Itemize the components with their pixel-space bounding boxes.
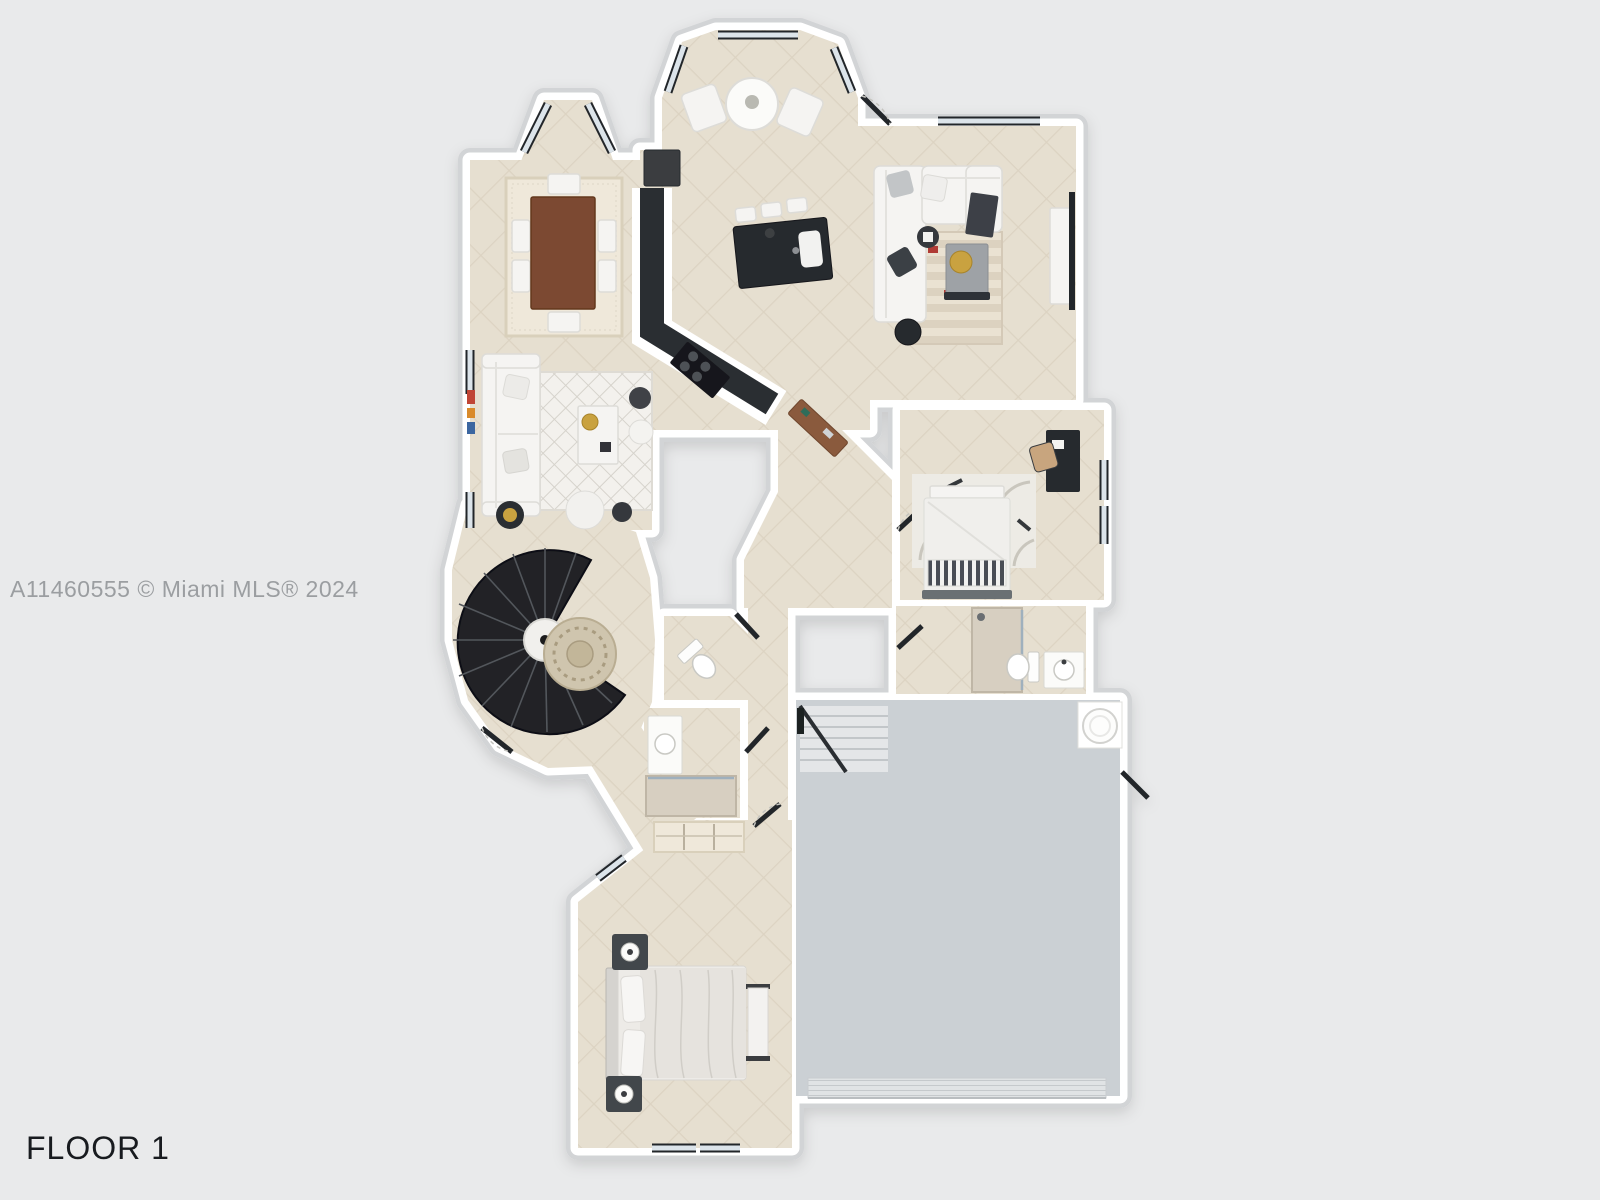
dining-room — [506, 174, 622, 336]
nightstand — [612, 934, 648, 970]
sofa-pillow — [502, 448, 529, 474]
pouf-large — [566, 491, 604, 529]
gold-decor — [582, 414, 598, 430]
bar-stool — [786, 197, 807, 213]
garage-door — [808, 1078, 1106, 1098]
pillow — [620, 1029, 645, 1076]
dining-chair — [598, 220, 616, 252]
sofa — [482, 354, 540, 516]
pillows — [928, 560, 1006, 586]
dining-chair — [512, 220, 530, 252]
wall-art — [467, 390, 475, 434]
closet — [654, 822, 744, 852]
coffee-table — [578, 406, 618, 464]
dining-chair — [512, 260, 530, 292]
headboard — [922, 590, 1012, 599]
bed-bench — [746, 984, 770, 1061]
vanity-sink — [1044, 652, 1084, 688]
shower-head — [977, 613, 985, 621]
water-heater — [1078, 702, 1122, 748]
bed-bench — [930, 486, 1004, 498]
tv — [1069, 192, 1075, 310]
nook-table-decor — [745, 95, 759, 109]
sofa-pillow — [920, 174, 948, 202]
coffee-table — [944, 244, 990, 300]
gold-tray — [950, 251, 972, 273]
dining-chair — [548, 174, 580, 194]
bed — [606, 966, 746, 1080]
round-rug — [544, 618, 616, 690]
island-sink — [798, 230, 824, 268]
bar-stool — [761, 202, 782, 218]
stool — [629, 387, 651, 409]
pouf — [629, 420, 653, 444]
sofa-pillow — [502, 374, 530, 401]
refrigerator — [644, 150, 680, 186]
pouf-dark — [612, 502, 632, 522]
nightstand — [606, 1076, 642, 1112]
dining-table — [531, 197, 595, 309]
side-table — [895, 319, 921, 345]
vanity-sink — [648, 716, 682, 774]
pillow — [620, 975, 645, 1022]
mls-watermark: A11460555 © Miami MLS® 2024 — [10, 576, 359, 603]
bar-stool — [735, 207, 756, 223]
ottoman — [917, 226, 939, 248]
toilet — [1007, 652, 1039, 682]
garage-stairs — [797, 706, 888, 772]
shower — [646, 776, 736, 816]
floor-label: FLOOR 1 — [26, 1130, 170, 1167]
dining-chair — [548, 312, 580, 332]
side-table-clock — [496, 501, 524, 529]
family-room — [467, 354, 653, 529]
floor-plan-screenshot: A11460555 © Miami MLS® 2024 FLOOR 1 — [0, 0, 1600, 1200]
dining-chair — [598, 260, 616, 292]
sofa-throw — [965, 192, 999, 237]
bed — [922, 486, 1012, 599]
